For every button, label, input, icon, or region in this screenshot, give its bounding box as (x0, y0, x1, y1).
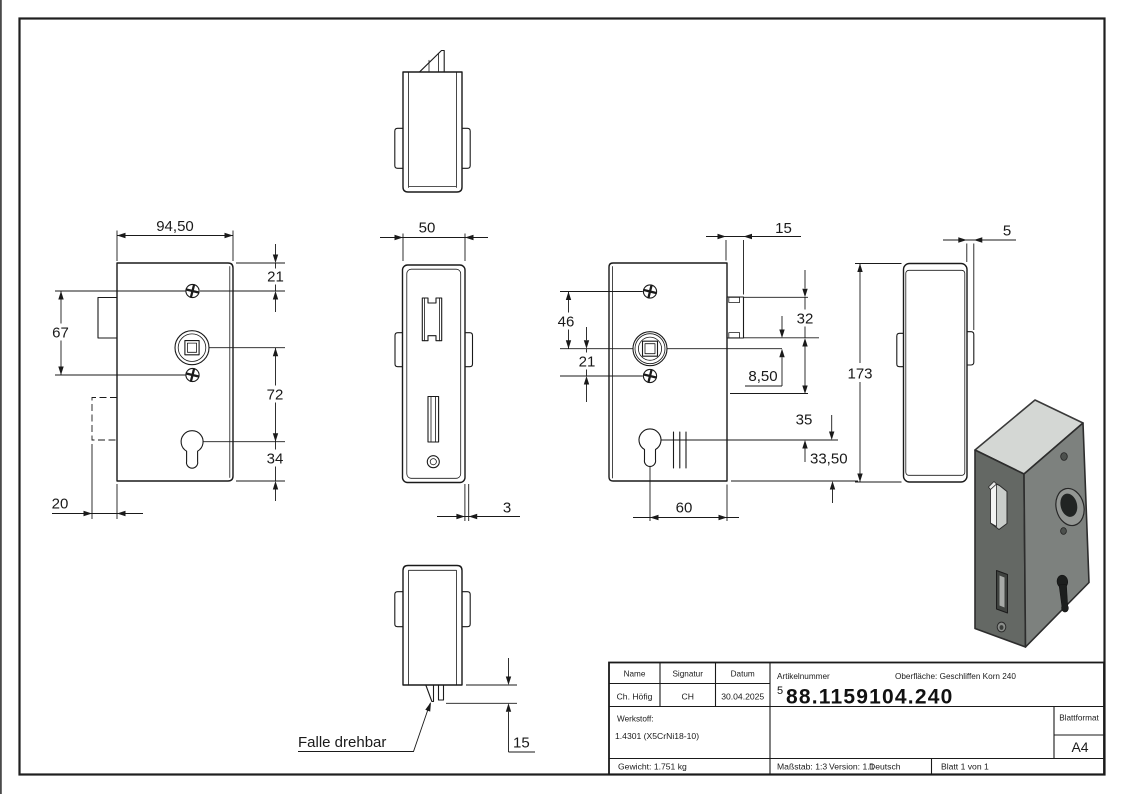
dim-label: 50 (419, 220, 436, 237)
dim-label: 46 (558, 314, 575, 331)
dim-label: 94,50 (156, 218, 194, 235)
oberflaeche-text: Oberfläche: Geschliffen Korn 240 (895, 672, 1016, 681)
version-text: Version: 1.1 (829, 762, 875, 772)
name-value: Ch. Höfig (617, 692, 653, 702)
artikelnummer-label: Artikelnummer (777, 672, 830, 681)
iso-screw-hole (1061, 528, 1067, 535)
dim-label: 3 (503, 500, 511, 517)
dim-label: 35 (796, 412, 813, 429)
dim-label: 67 (52, 325, 69, 342)
blatt-text: Blatt 1 von 1 (941, 762, 989, 772)
massstab-text: Maßstab: 1:3 (777, 762, 827, 772)
iso-faceplate-face (975, 450, 1026, 647)
article-number: 88.1159104.240 (786, 686, 953, 709)
gewicht-text: Gewicht: 1.751 kg (618, 762, 687, 772)
article-number-sup: 5 (777, 685, 783, 697)
werkstoff-value: 1.4301 (X5CrNi18-10) (615, 731, 699, 741)
dim-label: 21 (267, 269, 284, 286)
dim-label: 34 (267, 451, 284, 468)
werkstoff-label: Werkstoff: (617, 715, 654, 724)
dim-label: 8,50 (748, 368, 777, 385)
datum-label: Datum (731, 670, 755, 679)
page: 94,50 21 67 72 34 (0, 0, 1123, 794)
dim-label: 15 (513, 735, 530, 752)
signatur-value: CH (681, 692, 693, 702)
dim-label: 173 (847, 366, 872, 383)
dim-label: 32 (797, 311, 814, 328)
dim-label: 20 (52, 496, 69, 513)
blattformat-value: A4 (1071, 739, 1088, 755)
dim-label: 60 (676, 500, 693, 517)
name-label: Name (624, 670, 646, 679)
datum-value: 30.04.2025 (721, 692, 764, 702)
iso-latch (989, 482, 1008, 530)
dim-label: 5 (1003, 223, 1011, 240)
iso-screw-hole (997, 622, 1006, 632)
signatur-label: Signatur (672, 670, 703, 679)
blattformat-label: Blattformat (1059, 714, 1099, 723)
latch-note-label: Falle drehbar (298, 734, 386, 751)
dim-label: 72 (267, 387, 284, 404)
iso-bolt-slot (997, 571, 1008, 614)
dim-label: 33,50 (810, 451, 848, 468)
dim-label: 15 (775, 220, 792, 237)
dim-label: 21 (579, 354, 596, 371)
iso-screw-hole (1061, 453, 1068, 461)
sprache-text: Deutsch (869, 762, 901, 772)
technical-drawing: 94,50 21 67 72 34 (0, 0, 1123, 794)
window-left-edge (0, 0, 2, 794)
